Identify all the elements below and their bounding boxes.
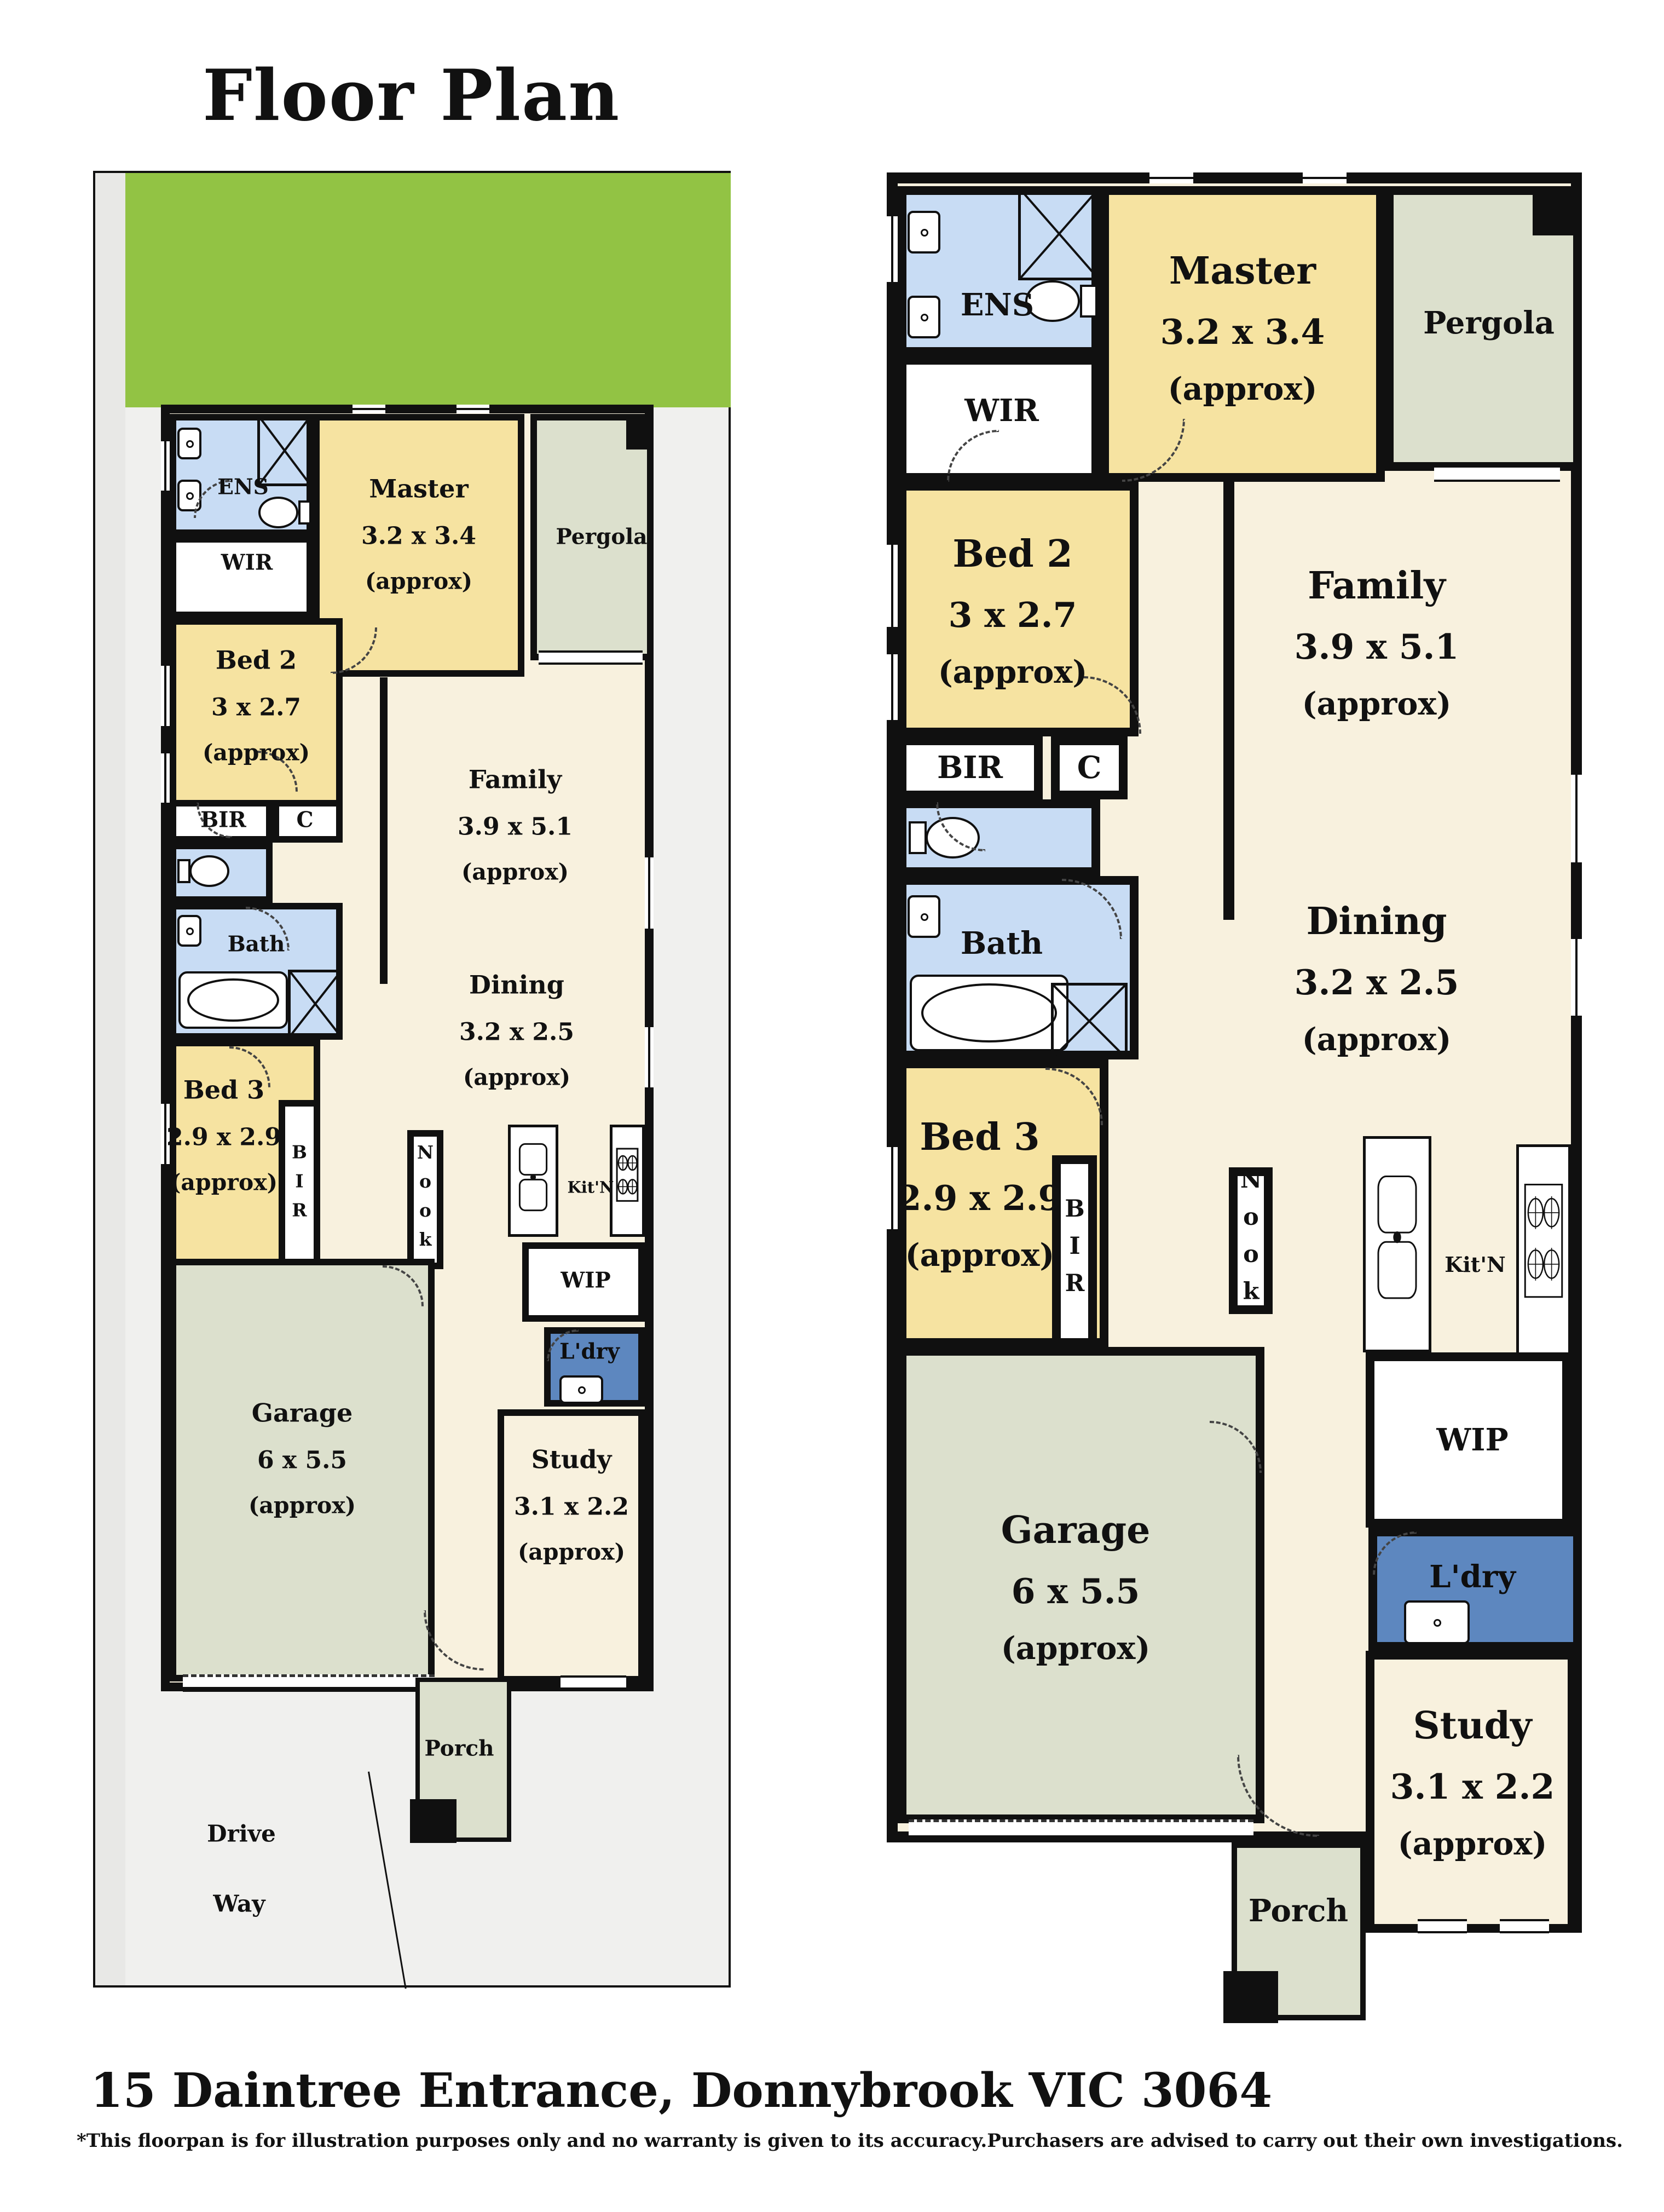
shower-icon [1051, 983, 1128, 1059]
label-porch: Porch [425, 1738, 494, 1760]
stove-icon [613, 1127, 642, 1234]
window [1418, 1919, 1467, 1933]
window [353, 405, 385, 413]
wall [380, 677, 388, 984]
label-wip: WIP [1436, 1425, 1508, 1455]
label-ens: ENS [217, 477, 269, 498]
shower-icon [288, 970, 343, 1038]
basin-icon [177, 428, 201, 459]
window [1500, 1919, 1549, 1933]
basin-icon [177, 915, 201, 947]
garage-door [909, 1819, 1253, 1840]
floor-plan-large: Master 3.2 x 3.4 (approx) Pergola ENS WI… [887, 172, 1582, 2020]
label-garage: Garage 6 x 5.5 (approx) [249, 1401, 356, 1517]
label-bed3: Bed 3 2.9 x 2.9 (approx) [898, 1119, 1062, 1271]
label-wir: WIR [221, 552, 273, 574]
label-dining: Dining 3.2 x 2.5 (approx) [459, 972, 574, 1089]
label-family: Family 3.9 x 5.1 (approx) [1295, 567, 1459, 719]
basin-icon [908, 296, 940, 338]
shower-icon [1018, 187, 1100, 280]
kitchen-island [1363, 1136, 1431, 1352]
window [887, 216, 898, 282]
kitchen-sink-icon [1366, 1139, 1429, 1350]
label-pergola: Pergola [1423, 308, 1555, 338]
window [161, 753, 170, 803]
label-study: Study 3.1 x 2.2 (approx) [514, 1447, 629, 1564]
toilet-icon [1026, 279, 1097, 323]
pergola-door [1434, 465, 1560, 482]
label-c: C [1077, 752, 1102, 783]
window [161, 666, 170, 726]
label-bir-vertical: BIR [1063, 1195, 1087, 1307]
window [645, 1027, 654, 1087]
wall [1533, 186, 1582, 235]
window [887, 545, 898, 627]
label-wip: WIP [561, 1270, 610, 1292]
driveway-boundary-line [368, 1771, 407, 1989]
label-bed3: Bed 3 2.9 x 2.9 (approx) [166, 1078, 281, 1194]
driveway-label: Way [213, 1891, 265, 1917]
window [1303, 172, 1347, 183]
laundry-trough-icon [1404, 1600, 1470, 1644]
window [561, 1675, 626, 1690]
porch-step [410, 1799, 457, 1843]
driveway-label: Drive [207, 1821, 276, 1847]
kitchen-sink-icon [511, 1127, 556, 1234]
stove-icon [1519, 1147, 1568, 1358]
label-bir: BIR [937, 752, 1003, 783]
bathtub-icon [178, 971, 288, 1029]
pergola-door [539, 650, 643, 665]
window [1571, 939, 1582, 1016]
label-master: Master 3.2 x 3.4 (approx) [1160, 252, 1325, 405]
label-bath: Bath [228, 934, 285, 955]
label-dining: Dining 3.2 x 2.5 (approx) [1295, 903, 1459, 1055]
label-study: Study 3.1 x 2.2 (approx) [1390, 1707, 1555, 1859]
toilet-icon [259, 496, 311, 529]
toilet-icon [177, 855, 229, 888]
page-title: Floor Plan [203, 55, 620, 137]
label-bed2: Bed 2 3 x 2.7 (approx) [938, 535, 1088, 688]
label-garage: Garage 6 x 5.5 (approx) [1001, 1512, 1151, 1664]
kitchen-island [508, 1125, 558, 1237]
window [887, 654, 898, 720]
label-ldry: L'dry [559, 1341, 620, 1363]
window [1571, 775, 1582, 862]
site-plan: Drive Way Master 3.2 x 3.4 (approx) Perg… [93, 171, 731, 1988]
label-nook: Nook [417, 1142, 435, 1258]
room-wir [170, 536, 313, 618]
window [1149, 172, 1193, 183]
wall [1223, 482, 1234, 920]
label-kitn: Kit'N [1445, 1254, 1505, 1275]
label-kitn: Kit'N [567, 1180, 614, 1196]
label-porch: Porch [1249, 1896, 1348, 1926]
basin-icon [908, 211, 940, 254]
lot-side-strip [95, 173, 125, 1985]
window [645, 857, 654, 929]
label-c: C [296, 810, 313, 831]
label-master: Master 3.2 x 3.4 (approx) [361, 476, 476, 593]
window [887, 1147, 898, 1229]
garage-door [183, 1674, 435, 1692]
label-nook: Nook [1239, 1166, 1263, 1315]
porch-step [1223, 1971, 1278, 2023]
bathtub-icon [910, 975, 1068, 1051]
kitchen-stove-unit [1516, 1144, 1571, 1361]
window [161, 441, 170, 491]
label-pergola: Pergola [556, 527, 647, 548]
floor-plan-page: Floor Plan [0, 0, 1664, 2212]
label-family: Family 3.9 x 5.1 (approx) [458, 767, 573, 884]
label-bath: Bath [961, 928, 1043, 959]
laundry-trough-icon [559, 1375, 603, 1404]
window [457, 405, 489, 413]
label-bed2: Bed 2 3 x 2.7 (approx) [203, 648, 310, 764]
label-wir: WIR [964, 395, 1039, 426]
label-ldry: L'dry [1429, 1562, 1516, 1592]
yard [125, 173, 731, 407]
wall [626, 414, 654, 450]
label-bir-vertical: BIR [291, 1142, 309, 1229]
label-bir: BIR [200, 810, 246, 831]
disclaimer: *This floorpan is for illustration purpo… [77, 2130, 1623, 2152]
address: 15 Daintree Entrance, Donnybrook VIC 306… [90, 2063, 1272, 2118]
kitchen-stove-unit [610, 1125, 645, 1237]
label-ens: ENS [961, 290, 1034, 320]
basin-icon [908, 895, 940, 938]
